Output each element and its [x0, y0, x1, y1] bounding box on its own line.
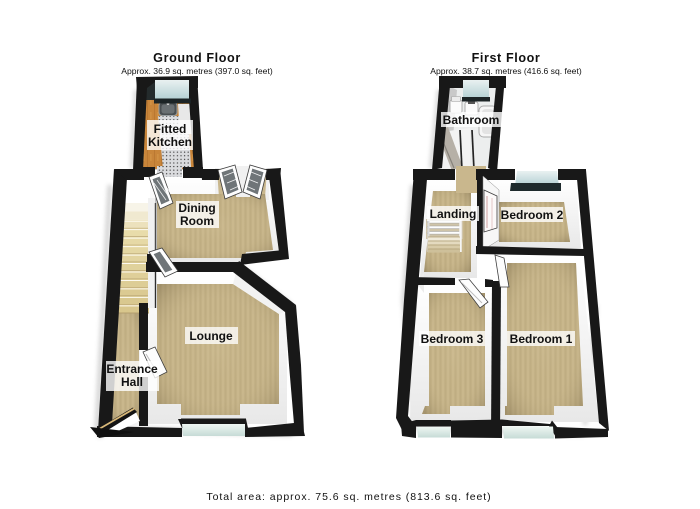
svg-text:Landing: Landing — [430, 207, 477, 221]
svg-text:Approx. 36.9 sq. metres (397.0: Approx. 36.9 sq. metres (397.0 sq. feet) — [121, 66, 273, 76]
svg-text:Bedroom 3: Bedroom 3 — [421, 332, 484, 346]
svg-text:Bedroom 1: Bedroom 1 — [510, 332, 573, 346]
svg-text:Lounge: Lounge — [189, 329, 233, 343]
svg-text:Total area: approx. 75.6 sq. m: Total area: approx. 75.6 sq. metres (813… — [206, 491, 491, 503]
svg-text:Kitchen: Kitchen — [148, 135, 192, 149]
svg-text:Bedroom 2: Bedroom 2 — [501, 208, 564, 222]
svg-text:Dining: Dining — [178, 201, 215, 215]
svg-text:Bathroom: Bathroom — [443, 113, 500, 127]
svg-text:Approx. 38.7 sq. metres (416.6: Approx. 38.7 sq. metres (416.6 sq. feet) — [430, 66, 582, 76]
svg-text:Fitted: Fitted — [154, 122, 187, 136]
svg-text:Entrance: Entrance — [106, 362, 158, 376]
svg-text:Hall: Hall — [121, 375, 143, 389]
svg-text:Room: Room — [180, 214, 214, 228]
svg-text:Ground Floor: Ground Floor — [153, 51, 241, 65]
svg-text:First Floor: First Floor — [472, 51, 541, 65]
